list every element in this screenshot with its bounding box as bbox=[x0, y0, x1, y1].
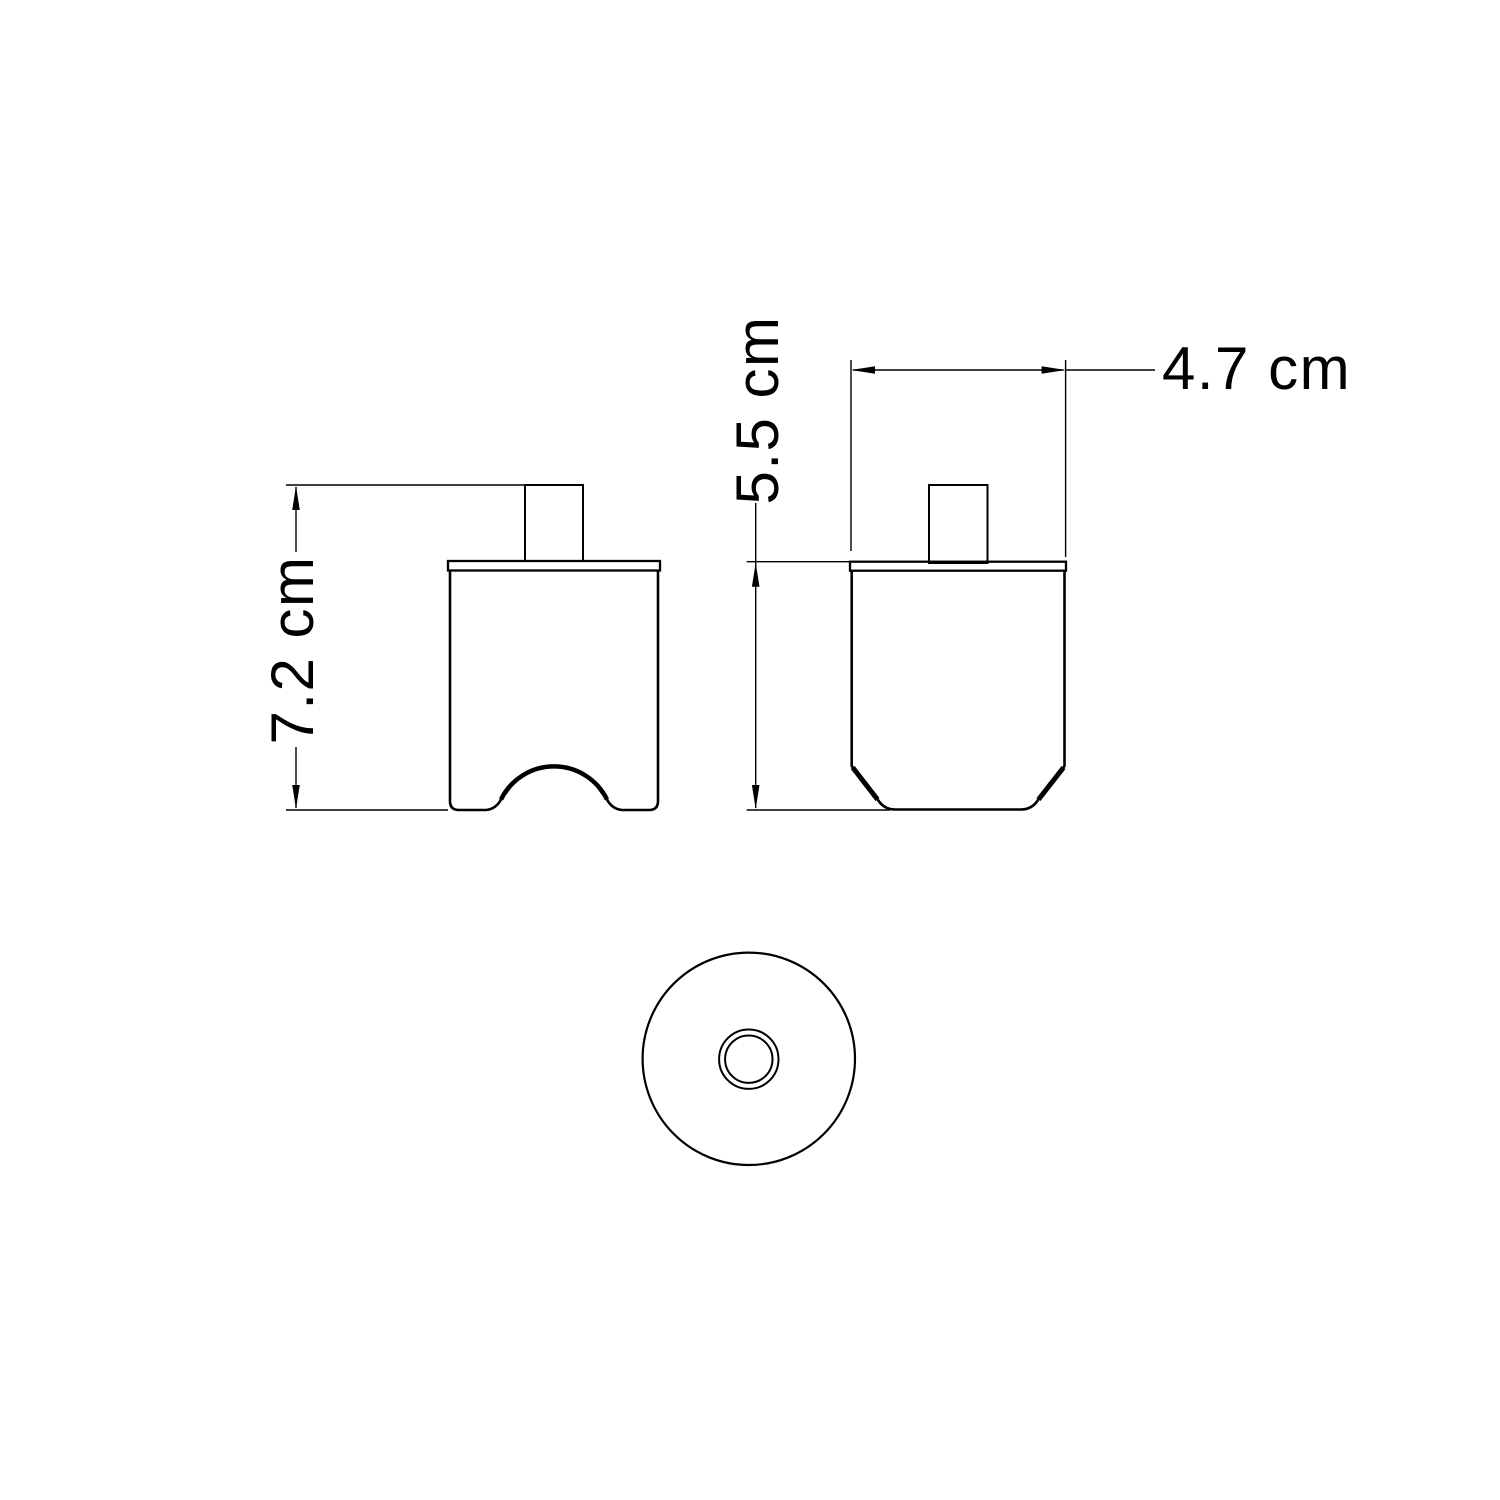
front-stem bbox=[525, 485, 583, 561]
dimension-height bbox=[286, 485, 583, 810]
height-arrow-down bbox=[292, 785, 300, 809]
front-cable-arch-bold bbox=[501, 766, 607, 799]
body-height-arrow-up bbox=[752, 563, 760, 587]
top-view-hole-ring-outer bbox=[719, 1030, 778, 1089]
dimension-body-height bbox=[747, 503, 890, 810]
front-cable-arch-inner bbox=[506, 767, 602, 794]
body-height-arrow-down bbox=[752, 785, 760, 809]
technical-drawing-canvas bbox=[0, 0, 1500, 1500]
front-view bbox=[448, 485, 660, 810]
side-stem bbox=[929, 485, 988, 563]
front-body-outline bbox=[450, 571, 658, 811]
side-chamfer-right bbox=[1039, 768, 1064, 800]
top-view bbox=[643, 953, 855, 1165]
side-body-outline bbox=[852, 571, 1065, 810]
top-view-outer-circle bbox=[643, 953, 855, 1165]
technical-drawing-page: 7.2 cm 5.5 cm 4.7 cm bbox=[0, 0, 1500, 1500]
side-chamfer-left bbox=[853, 768, 878, 800]
width-dimension-label: 4.7 cm bbox=[1162, 339, 1351, 399]
body-height-dimension-label: 5.5 cm bbox=[728, 315, 788, 504]
dimension-width bbox=[851, 360, 1155, 557]
height-dimension-label: 7.2 cm bbox=[263, 555, 323, 744]
height-arrow-up bbox=[292, 486, 300, 510]
front-cap-plate bbox=[448, 561, 660, 571]
width-arrow-right bbox=[1042, 366, 1066, 374]
width-arrow-left bbox=[851, 366, 875, 374]
top-view-hole-ring-inner bbox=[725, 1036, 772, 1083]
side-view bbox=[850, 485, 1066, 810]
